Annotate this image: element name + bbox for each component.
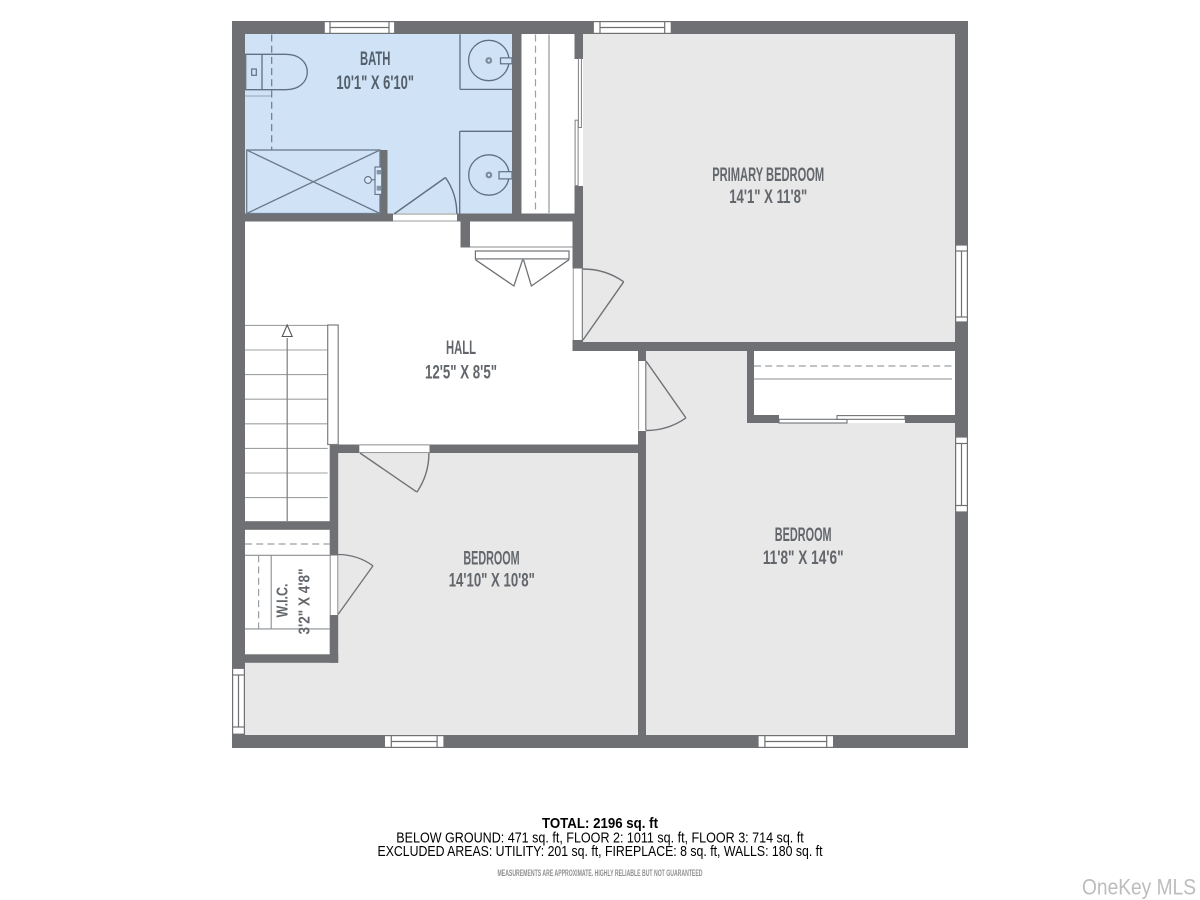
svg-text:BATH: BATH <box>360 49 391 70</box>
svg-text:BEDROOM: BEDROOM <box>775 525 832 546</box>
svg-text:W.I.C.: W.I.C. <box>275 584 292 618</box>
svg-text:OneKey MLS: OneKey MLS <box>1082 874 1196 899</box>
svg-text:14'10" X 10'8": 14'10" X 10'8" <box>449 571 535 592</box>
svg-text:PRIMARY BEDROOM: PRIMARY BEDROOM <box>712 165 824 186</box>
svg-text:BEDROOM: BEDROOM <box>463 549 519 570</box>
svg-text:EXCLUDED AREAS: UTILITY: 201 s: EXCLUDED AREAS: UTILITY: 201 sq. ft, FIR… <box>378 844 823 860</box>
svg-text:MEASUREMENTS ARE APPROXIMATE.: MEASUREMENTS ARE APPROXIMATE. HIGHLY REL… <box>498 868 703 878</box>
svg-text:11'8" X 14'6": 11'8" X 14'6" <box>763 548 844 569</box>
svg-text:12'5" X 8'5": 12'5" X 8'5" <box>425 362 497 383</box>
svg-text:10'1" X 6'10": 10'1" X 6'10" <box>336 73 414 94</box>
svg-text:14'1" X 11'8": 14'1" X 11'8" <box>729 187 807 208</box>
svg-text:3'2" X 4'8": 3'2" X 4'8" <box>297 569 314 635</box>
svg-text:HALL: HALL <box>446 338 476 359</box>
